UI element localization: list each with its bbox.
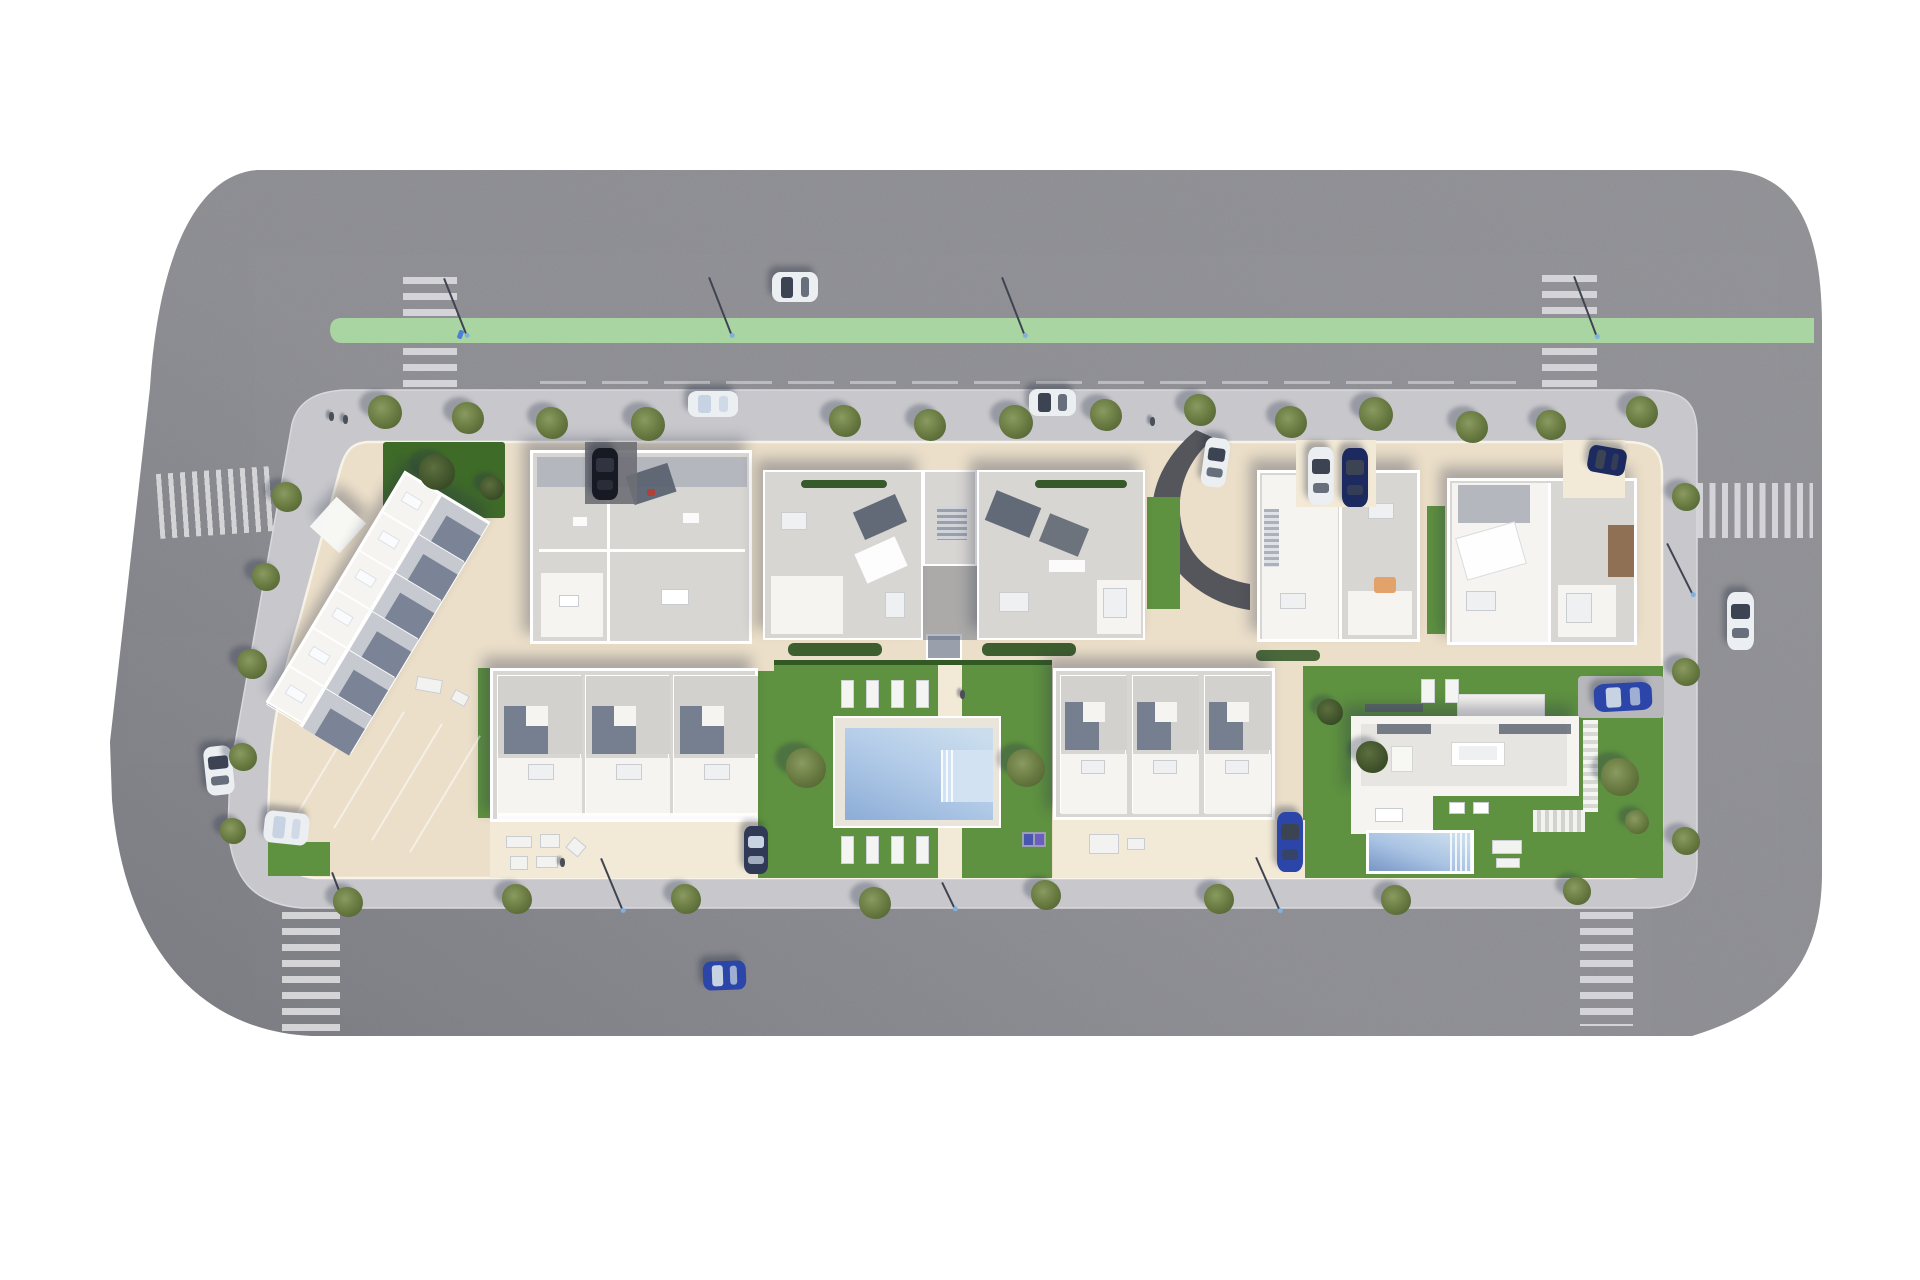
villa-pool-furniture <box>1492 840 1522 854</box>
pedestrian <box>343 415 348 424</box>
car-body <box>1342 448 1368 507</box>
lane-dashes <box>540 381 1530 384</box>
car-windshield <box>698 395 711 413</box>
car-rear-window <box>1629 687 1640 705</box>
streetlight-head <box>952 905 959 912</box>
street-tree <box>631 407 665 441</box>
street-tree <box>536 407 568 439</box>
skylight <box>704 764 730 780</box>
roof-vent <box>683 513 699 523</box>
skylight <box>528 764 554 780</box>
tree-canopy <box>859 887 891 919</box>
streetlight <box>1666 543 1694 596</box>
pergola <box>853 494 907 540</box>
street-tree <box>829 405 861 437</box>
crosswalk-east <box>1697 483 1813 538</box>
walkway-hedge <box>788 643 882 656</box>
car-rear-window <box>748 856 763 865</box>
orange-table <box>1374 577 1396 593</box>
street-tree <box>1672 658 1700 686</box>
patio-furniture <box>540 834 560 848</box>
roof-terrace <box>771 576 843 634</box>
streetlight <box>941 882 956 910</box>
lawn-sw-corner <box>268 842 330 876</box>
car-body <box>262 810 310 847</box>
roof-furniture <box>661 589 689 605</box>
car-rear-window <box>597 480 614 489</box>
street-tree <box>452 402 484 434</box>
crosswalk-north-east <box>1542 275 1597 317</box>
car-windshield <box>272 815 286 838</box>
streetlight-head <box>1690 591 1697 598</box>
car-blue-villa <box>1593 682 1652 713</box>
skylight <box>1153 760 1177 774</box>
street-tree <box>1626 396 1658 428</box>
sun-loungers-south <box>841 836 943 864</box>
lawn-strip-center-east <box>1147 497 1180 609</box>
car-white-parked <box>688 391 738 417</box>
street-tree <box>272 482 302 512</box>
roof-furniture <box>781 512 807 530</box>
car-windshield <box>1731 604 1750 619</box>
pedestrian <box>560 858 565 867</box>
apartment-complex-center <box>763 452 1145 640</box>
car-windshield <box>711 965 723 986</box>
car-windshield <box>1038 393 1050 412</box>
unit-divider <box>1548 483 1551 642</box>
parasol-canopy <box>310 497 366 553</box>
garden-bush <box>786 748 826 788</box>
bin <box>1035 834 1044 845</box>
car-body <box>1308 447 1334 505</box>
roof-vent <box>573 517 587 526</box>
townhouse-unit <box>1132 675 1198 813</box>
street-tree <box>1381 885 1411 915</box>
townhouse-unit <box>585 675 669 815</box>
streetlight <box>708 277 733 337</box>
streetlight-head <box>620 907 627 914</box>
villa-shade-wall <box>1365 704 1423 712</box>
complex-west-wing <box>763 470 923 640</box>
street-tree <box>1359 397 1393 431</box>
tree-canopy <box>1381 885 1411 915</box>
crosswalk-north-east <box>1542 348 1597 390</box>
sun-lounger <box>916 680 929 708</box>
waste-bins <box>1022 832 1046 847</box>
solar-panel <box>331 607 354 627</box>
street-tree <box>1204 884 1234 914</box>
tree-canopy <box>1317 699 1343 725</box>
car-darkblue-parked <box>1342 448 1368 507</box>
garden-tree <box>1601 758 1639 796</box>
villa-lounger <box>1421 679 1435 703</box>
plot-line <box>409 735 481 853</box>
roof-furniture <box>1566 593 1592 623</box>
patio-furniture <box>506 836 532 848</box>
street-tree <box>1275 406 1307 438</box>
crosswalk-north-west <box>403 277 457 317</box>
stair-steps <box>937 506 967 540</box>
stair-steps <box>1264 509 1279 567</box>
garden-palm <box>1625 810 1649 834</box>
scene-entities <box>0 0 1920 1280</box>
car-body <box>744 826 768 874</box>
street-tree <box>229 743 257 771</box>
streetlight-head <box>1277 907 1284 914</box>
patio-furniture <box>450 689 470 707</box>
tree-canopy <box>1626 396 1658 428</box>
car-white-driving <box>772 272 818 302</box>
tree-canopy <box>1456 411 1488 443</box>
tree-canopy <box>452 402 484 434</box>
car-white-parked <box>1029 389 1076 416</box>
sun-lounger <box>891 680 904 708</box>
complex-courtyard <box>923 566 977 640</box>
tree-canopy <box>1184 394 1216 426</box>
car-blue-bottom-road <box>703 960 747 990</box>
tree-canopy <box>999 405 1033 439</box>
sw-driveway <box>490 822 758 878</box>
tree-canopy <box>1031 880 1061 910</box>
townhouse-row-se <box>1053 668 1275 820</box>
tree-canopy <box>829 405 861 437</box>
car-rear-window <box>1347 485 1364 496</box>
solar-panel <box>377 530 400 550</box>
townhouse-row-nw <box>266 471 491 754</box>
streetlight-head <box>729 332 735 338</box>
tree-canopy <box>1625 810 1649 834</box>
roof-terrace <box>1348 591 1412 635</box>
solar-panel <box>354 568 377 588</box>
sun-lounger <box>866 680 879 708</box>
car-windshield <box>1605 687 1621 707</box>
skylight <box>1225 760 1249 774</box>
tree-canopy <box>1007 749 1045 787</box>
garden-tree <box>419 454 455 490</box>
tree-canopy <box>1563 877 1591 905</box>
car-windshield <box>596 458 614 472</box>
townhouse-unit <box>1204 675 1270 813</box>
lawn-strip-between-pairs <box>1427 506 1445 634</box>
street-tree <box>333 887 363 917</box>
patio-furniture <box>1089 834 1119 854</box>
patio-light <box>1083 702 1105 722</box>
car-windshield <box>1281 824 1299 840</box>
patio-light <box>614 706 636 726</box>
garden-tree <box>1356 741 1388 773</box>
car-windshield <box>1207 447 1226 462</box>
villa-terrace <box>1351 796 1433 834</box>
stair-steps <box>1533 810 1585 832</box>
aerial-site-plan-render <box>0 0 1920 1280</box>
complex-east-wing <box>977 470 1145 640</box>
roof-hedge <box>1035 480 1127 488</box>
tree-canopy <box>480 476 504 500</box>
street-tree <box>1031 880 1061 910</box>
car-body <box>772 272 818 302</box>
car-white-right-road <box>1727 592 1754 650</box>
street-tree <box>1563 877 1591 905</box>
car-body <box>1200 436 1232 488</box>
street-tree <box>220 818 246 844</box>
street-tree <box>999 405 1033 439</box>
patio-light <box>1227 702 1249 722</box>
complex-stair-core <box>923 470 977 566</box>
street-tree <box>368 395 402 429</box>
roof-furniture <box>1103 588 1127 618</box>
car-rear-window <box>801 277 809 296</box>
barbecue <box>647 489 655 496</box>
streetlight-head <box>1022 332 1028 338</box>
tree-canopy <box>368 395 402 429</box>
car-windshield <box>1346 460 1364 475</box>
tree-canopy <box>237 649 267 679</box>
street-tree <box>502 884 532 914</box>
roof-box <box>1391 746 1413 772</box>
solar-panel <box>308 646 331 666</box>
villa-lounger <box>1445 679 1459 703</box>
walkway-hedge <box>982 643 1076 656</box>
tree-canopy <box>1090 399 1122 431</box>
patio-furniture <box>510 856 528 870</box>
tree-canopy <box>1275 406 1307 438</box>
tree-canopy <box>1359 397 1393 431</box>
dining-table <box>1375 808 1403 822</box>
car-body <box>1727 592 1754 650</box>
street-tree <box>237 649 267 679</box>
pedestrian <box>960 690 965 699</box>
villa-stairs-horizontal <box>1533 810 1585 832</box>
patio-furniture <box>536 856 558 868</box>
car-windshield <box>781 277 793 298</box>
pedestrian <box>1150 417 1155 426</box>
tree-canopy <box>786 748 826 788</box>
car-rear-window <box>1282 849 1299 860</box>
pedestrian <box>329 412 334 421</box>
street-tree <box>671 884 701 914</box>
roof-furniture <box>1466 591 1496 611</box>
solar-panel <box>285 684 308 704</box>
tree-canopy <box>502 884 532 914</box>
tree-canopy <box>1672 483 1700 511</box>
roof-line <box>539 549 745 552</box>
car-rear-window <box>1313 483 1330 493</box>
car-rear-window <box>1058 394 1066 411</box>
patio-furniture <box>1127 838 1145 850</box>
patio-light <box>526 706 548 726</box>
pool-step-lines <box>1450 833 1471 871</box>
patio-light <box>702 706 724 726</box>
tree-canopy <box>419 454 455 490</box>
roof-dark-panel <box>1458 485 1530 523</box>
se-driveway <box>1053 820 1305 878</box>
garden-tree <box>480 476 504 500</box>
street-tree <box>1536 410 1566 440</box>
street-tree <box>859 887 891 919</box>
roof-table <box>1459 746 1497 760</box>
street-tree <box>914 409 946 441</box>
crosswalk-south-east <box>1580 912 1633 1026</box>
car-white-turning <box>1200 436 1232 488</box>
car-body <box>1593 682 1652 713</box>
car-white-parked-sw <box>262 810 310 847</box>
sun-lounger <box>866 836 879 864</box>
garden-bush <box>1007 749 1045 787</box>
car-rear-window <box>719 396 728 413</box>
car-black-suv <box>592 448 618 500</box>
car-windshield <box>1312 459 1330 474</box>
sun-lounger <box>891 836 904 864</box>
street-tree <box>252 563 280 591</box>
streetlight-head <box>464 332 470 338</box>
townhouse-unit <box>497 675 581 815</box>
car-navy-convertible <box>744 826 768 874</box>
townhouse-row-sw <box>490 668 758 822</box>
pergola <box>985 490 1041 538</box>
pergola <box>1377 724 1431 734</box>
pergola-white <box>854 536 907 583</box>
tree-canopy <box>333 887 363 917</box>
car-body <box>688 391 738 417</box>
townhouse-unit <box>1060 675 1126 813</box>
car-white-parked <box>1308 447 1334 505</box>
tree-canopy <box>1536 410 1566 440</box>
sun-lounger <box>916 836 929 864</box>
villa-pool <box>1366 830 1474 874</box>
car-windshield <box>748 836 765 848</box>
sun-loungers-north <box>841 680 943 708</box>
bin <box>1024 834 1033 845</box>
sun-lounger <box>841 836 854 864</box>
pool-deck <box>833 716 1001 828</box>
street-tree <box>1672 827 1700 855</box>
sun-lounger <box>841 680 854 708</box>
car-rear-window <box>729 966 737 985</box>
garden-tree <box>1317 699 1343 725</box>
skylight <box>616 764 642 780</box>
roof-furniture <box>559 595 579 607</box>
crosswalk-west <box>156 466 275 539</box>
crosswalk-north-west <box>403 348 457 390</box>
car-body <box>1277 812 1303 872</box>
tree-canopy <box>536 407 568 439</box>
street-tree <box>1090 399 1122 431</box>
walkway-hedge <box>1256 650 1320 661</box>
car-rear-window <box>1732 628 1749 638</box>
tree-canopy <box>1672 827 1700 855</box>
tree-canopy <box>631 407 665 441</box>
tree-canopy <box>671 884 701 914</box>
car-blue-parked-se <box>1277 812 1303 872</box>
car-body <box>703 960 747 990</box>
apartment-pair-east2 <box>1447 478 1637 645</box>
street-tree <box>1672 483 1700 511</box>
pool-step-lines <box>941 750 955 802</box>
pool-water <box>845 728 993 820</box>
patio-furniture <box>415 676 443 694</box>
townhouse-unit <box>673 675 757 815</box>
tree-canopy <box>1204 884 1234 914</box>
patio-light <box>1155 702 1177 722</box>
skylight <box>1081 760 1105 774</box>
tree-canopy <box>229 743 257 771</box>
tree-canopy <box>914 409 946 441</box>
roof-table <box>1049 560 1085 572</box>
car-body <box>592 448 618 500</box>
plot-line <box>371 723 443 841</box>
hedge-top <box>774 660 1052 665</box>
street-tree <box>1456 411 1488 443</box>
apartment-block-a <box>530 450 752 644</box>
tree-canopy <box>252 563 280 591</box>
roof-furniture <box>885 592 905 618</box>
front-parapet <box>497 813 757 821</box>
side-table <box>1473 802 1489 814</box>
street-tree <box>1184 394 1216 426</box>
side-table <box>1449 802 1465 814</box>
tree-canopy <box>272 482 302 512</box>
streetlight <box>1001 277 1026 337</box>
cyclist <box>457 329 465 339</box>
solar-panel <box>401 491 424 511</box>
streetlight-head <box>1594 333 1600 339</box>
crosswalk-south-west <box>282 912 340 1036</box>
tree-canopy <box>1601 758 1639 796</box>
pergola <box>1039 513 1089 557</box>
roof-hedge <box>801 480 887 488</box>
pergola <box>1499 724 1571 734</box>
patio-furniture <box>565 836 586 857</box>
tree-canopy <box>220 818 246 844</box>
villa-pool-furniture <box>1496 858 1520 868</box>
roof-furniture <box>1280 593 1306 609</box>
car-body <box>1029 389 1076 416</box>
roof-furniture <box>999 592 1029 612</box>
wood-pergola <box>1608 525 1634 577</box>
tree-canopy <box>1672 658 1700 686</box>
tree-canopy <box>1356 741 1388 773</box>
